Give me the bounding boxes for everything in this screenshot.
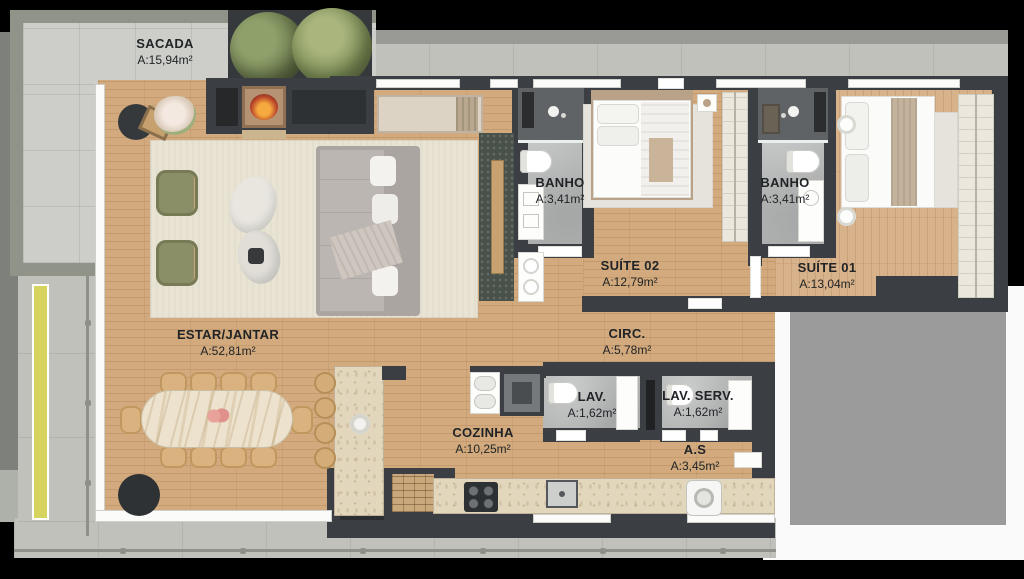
room-name: SUÍTE 02 xyxy=(545,259,715,273)
railing-post xyxy=(85,320,91,326)
window-top-entry xyxy=(376,79,460,88)
toilet-icon xyxy=(786,150,820,173)
wardrobe xyxy=(958,94,994,298)
wardrobe-rod xyxy=(975,94,977,298)
room-area: A:15,94m² xyxy=(80,53,250,67)
room-area: A:5,78m² xyxy=(542,343,712,357)
armchair-icon xyxy=(156,170,198,216)
window-bottom-kitchen xyxy=(533,514,611,523)
room-label-lavserv: LAV. SERV. A:1,62m² xyxy=(613,389,783,419)
sofa xyxy=(316,146,420,316)
washing-machine-icon xyxy=(686,480,722,516)
sofa-pillow xyxy=(372,194,398,224)
armchair-icon xyxy=(156,240,198,286)
throw-blanket xyxy=(891,98,917,206)
wardrobe-rod xyxy=(734,92,736,242)
room-label-suite01: SUÍTE 01 A:13,04m² xyxy=(742,261,912,291)
dining-chair xyxy=(250,446,277,468)
top-ledge-shadow xyxy=(345,30,1008,44)
room-area: A:10,25m² xyxy=(398,442,568,456)
kitchen-island xyxy=(334,366,384,516)
room-label-banho1: BANHO A:3,41m² xyxy=(475,176,645,206)
living-rug xyxy=(150,140,478,318)
room-area: A:13,04m² xyxy=(742,277,912,291)
entry-daybed xyxy=(377,95,483,133)
railing-post xyxy=(480,548,486,554)
pillow xyxy=(597,126,639,146)
cooktop-icon xyxy=(464,482,498,512)
door-suite02 xyxy=(688,298,722,309)
room-area: A:3,41m² xyxy=(700,192,870,206)
basin xyxy=(523,214,539,228)
dining-chair xyxy=(190,446,217,468)
shower-glass-line xyxy=(758,140,828,143)
sofa-pillow xyxy=(370,156,396,186)
left-walkway-yellow-strip xyxy=(32,284,49,520)
railing-post xyxy=(240,548,246,554)
balcony-border-bottom xyxy=(10,263,106,276)
door-top xyxy=(658,78,684,89)
shower-niche xyxy=(814,92,826,132)
fridge-door xyxy=(474,394,496,409)
bar-stool-icon xyxy=(314,372,336,394)
faucet-dot xyxy=(559,491,565,497)
wardrobe xyxy=(722,92,748,242)
room-area: A:3,45m² xyxy=(610,459,780,473)
fridge-icon xyxy=(470,372,500,414)
room-label-circ: CIRC. A:5,78m² xyxy=(542,327,712,357)
room-name: SACADA xyxy=(80,37,250,51)
fireplace-wall xyxy=(206,78,374,134)
door-as xyxy=(700,430,718,441)
railing-post xyxy=(720,548,726,554)
fire-icon xyxy=(250,94,278,120)
room-label-cozinha: COZINHA A:10,25m² xyxy=(398,426,568,456)
glass-wall-left xyxy=(95,84,105,518)
sofa-pillow xyxy=(372,266,398,296)
room-name: A.S xyxy=(610,443,780,457)
towel-roll xyxy=(523,258,539,274)
railing-post xyxy=(600,548,606,554)
wall-right xyxy=(992,76,1008,310)
bar-stool-icon xyxy=(314,397,336,419)
dining-chair xyxy=(160,446,187,468)
fireplace-niche-left xyxy=(216,88,238,126)
room-name: ESTAR/JANTAR xyxy=(143,328,313,342)
room-area: A:1,62m² xyxy=(613,405,783,419)
door-banho2 xyxy=(768,246,810,257)
floor-plan-scene: SACADA A:15,94m² BANHO A:3,41m² SUÍTE 02… xyxy=(0,0,1024,579)
lamp-dot xyxy=(703,99,711,107)
window-top-suite02 xyxy=(533,79,621,88)
tree-icon xyxy=(292,8,372,86)
towel-roll xyxy=(523,279,539,295)
room-label-as: A.S A:3,45m² xyxy=(610,443,780,473)
shower-head-icon xyxy=(548,106,559,117)
washer-drum xyxy=(694,488,714,508)
balcony-border-left xyxy=(10,10,23,276)
island-dark-end xyxy=(382,366,406,380)
room-label-estar: ESTAR/JANTAR A:52,81m² xyxy=(143,328,313,358)
flowers-icon xyxy=(204,408,232,424)
shower-niche xyxy=(522,92,534,128)
bar-stool-icon xyxy=(314,422,336,444)
bar-stool-icon xyxy=(314,447,336,469)
shower-glass-line xyxy=(518,140,584,143)
brick-oven-icon xyxy=(392,474,434,512)
fridge-door xyxy=(474,376,496,391)
neighbor-unit-mask xyxy=(790,307,1006,525)
kitchen-sink-icon xyxy=(546,480,578,508)
room-name: COZINHA xyxy=(398,426,568,440)
room-label-banho2: BANHO A:3,41m² xyxy=(700,176,870,206)
pillow xyxy=(597,104,639,124)
door-lav-serv xyxy=(662,430,686,441)
room-label-suite02: SUÍTE 02 A:12,79m² xyxy=(545,259,715,289)
room-name: BANHO xyxy=(700,176,870,190)
fireplace-niche-right xyxy=(292,90,366,124)
railing-post xyxy=(85,480,91,486)
firebox-icon xyxy=(242,86,286,128)
towel-cabinet xyxy=(518,252,544,302)
island-pot-icon xyxy=(350,414,370,434)
room-name: BANHO xyxy=(475,176,645,190)
railing-post xyxy=(360,548,366,554)
throw-blanket xyxy=(649,138,673,182)
room-name: LAV. SERV. xyxy=(613,389,783,403)
dining-chair xyxy=(120,406,142,434)
window-top-banho1 xyxy=(490,79,518,88)
room-area: A:12,79m² xyxy=(545,275,715,289)
round-nightstand xyxy=(837,115,856,134)
window-top-suite01 xyxy=(848,79,960,88)
room-label-sacada: SACADA A:15,94m² xyxy=(80,37,250,67)
shower-head-icon xyxy=(788,106,799,117)
toilet-icon xyxy=(520,150,552,173)
nightstand xyxy=(697,94,717,112)
round-nightstand xyxy=(837,207,856,226)
dining-chair xyxy=(220,446,247,468)
railing-post xyxy=(85,400,91,406)
room-name: CIRC. xyxy=(542,327,712,341)
bottom-walkway-railing xyxy=(14,549,776,552)
window-top-banho2 xyxy=(716,79,806,88)
daybed-pillow xyxy=(456,97,478,131)
tray-icon xyxy=(248,248,264,264)
left-walkway xyxy=(18,272,104,522)
railing-post xyxy=(120,548,126,554)
room-area: A:3,41m² xyxy=(475,192,645,206)
dining-chair xyxy=(291,406,313,434)
balcony-floor-left xyxy=(23,85,98,263)
fireplace-hearth xyxy=(242,130,286,139)
stool-icon xyxy=(762,104,780,134)
left-exterior-strip-light xyxy=(0,470,18,522)
room-name: SUÍTE 01 xyxy=(742,261,912,275)
door-banho1 xyxy=(538,246,582,257)
room-area: A:52,81m² xyxy=(143,344,313,358)
black-stool-icon xyxy=(118,474,160,516)
